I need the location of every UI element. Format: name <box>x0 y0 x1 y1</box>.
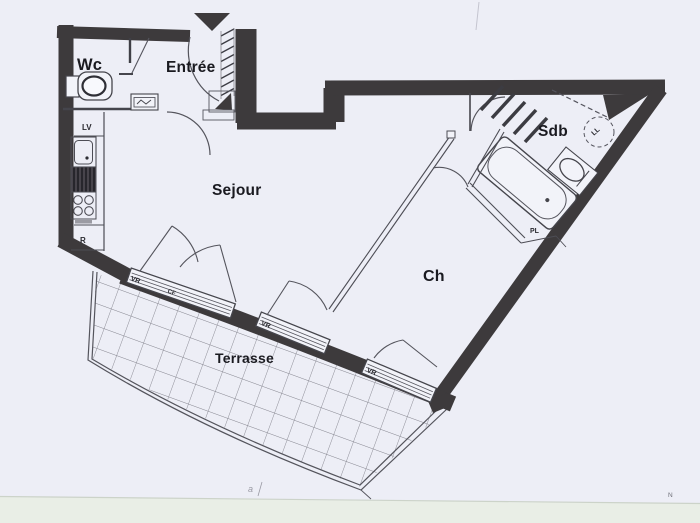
dishwasher-label: LV <box>82 123 92 132</box>
floorplan-scan: VR CF VR VR <box>0 0 700 523</box>
floorplan-drawing: VR CF VR VR <box>0 0 700 523</box>
north-mark: N <box>668 492 673 499</box>
closet-label: PL <box>530 228 540 235</box>
kitchen-worktop-hatch <box>71 167 96 192</box>
ch-label: Ch <box>423 268 445 285</box>
radiator-icon <box>131 94 158 110</box>
terrasse-label: Terrasse <box>215 350 274 366</box>
wall-top <box>325 87 665 88</box>
entree-label: Entrée <box>166 59 216 76</box>
sejour-label: Sejour <box>212 182 261 199</box>
wall-top-left <box>57 32 190 36</box>
toilet-icon <box>66 72 112 100</box>
wc-label: Wc <box>77 56 102 74</box>
handwritten-mark: a <box>248 484 253 494</box>
sdb-label: Sdb <box>538 123 568 140</box>
fridge-label: R <box>80 236 86 245</box>
partition-end-cap <box>447 131 455 138</box>
